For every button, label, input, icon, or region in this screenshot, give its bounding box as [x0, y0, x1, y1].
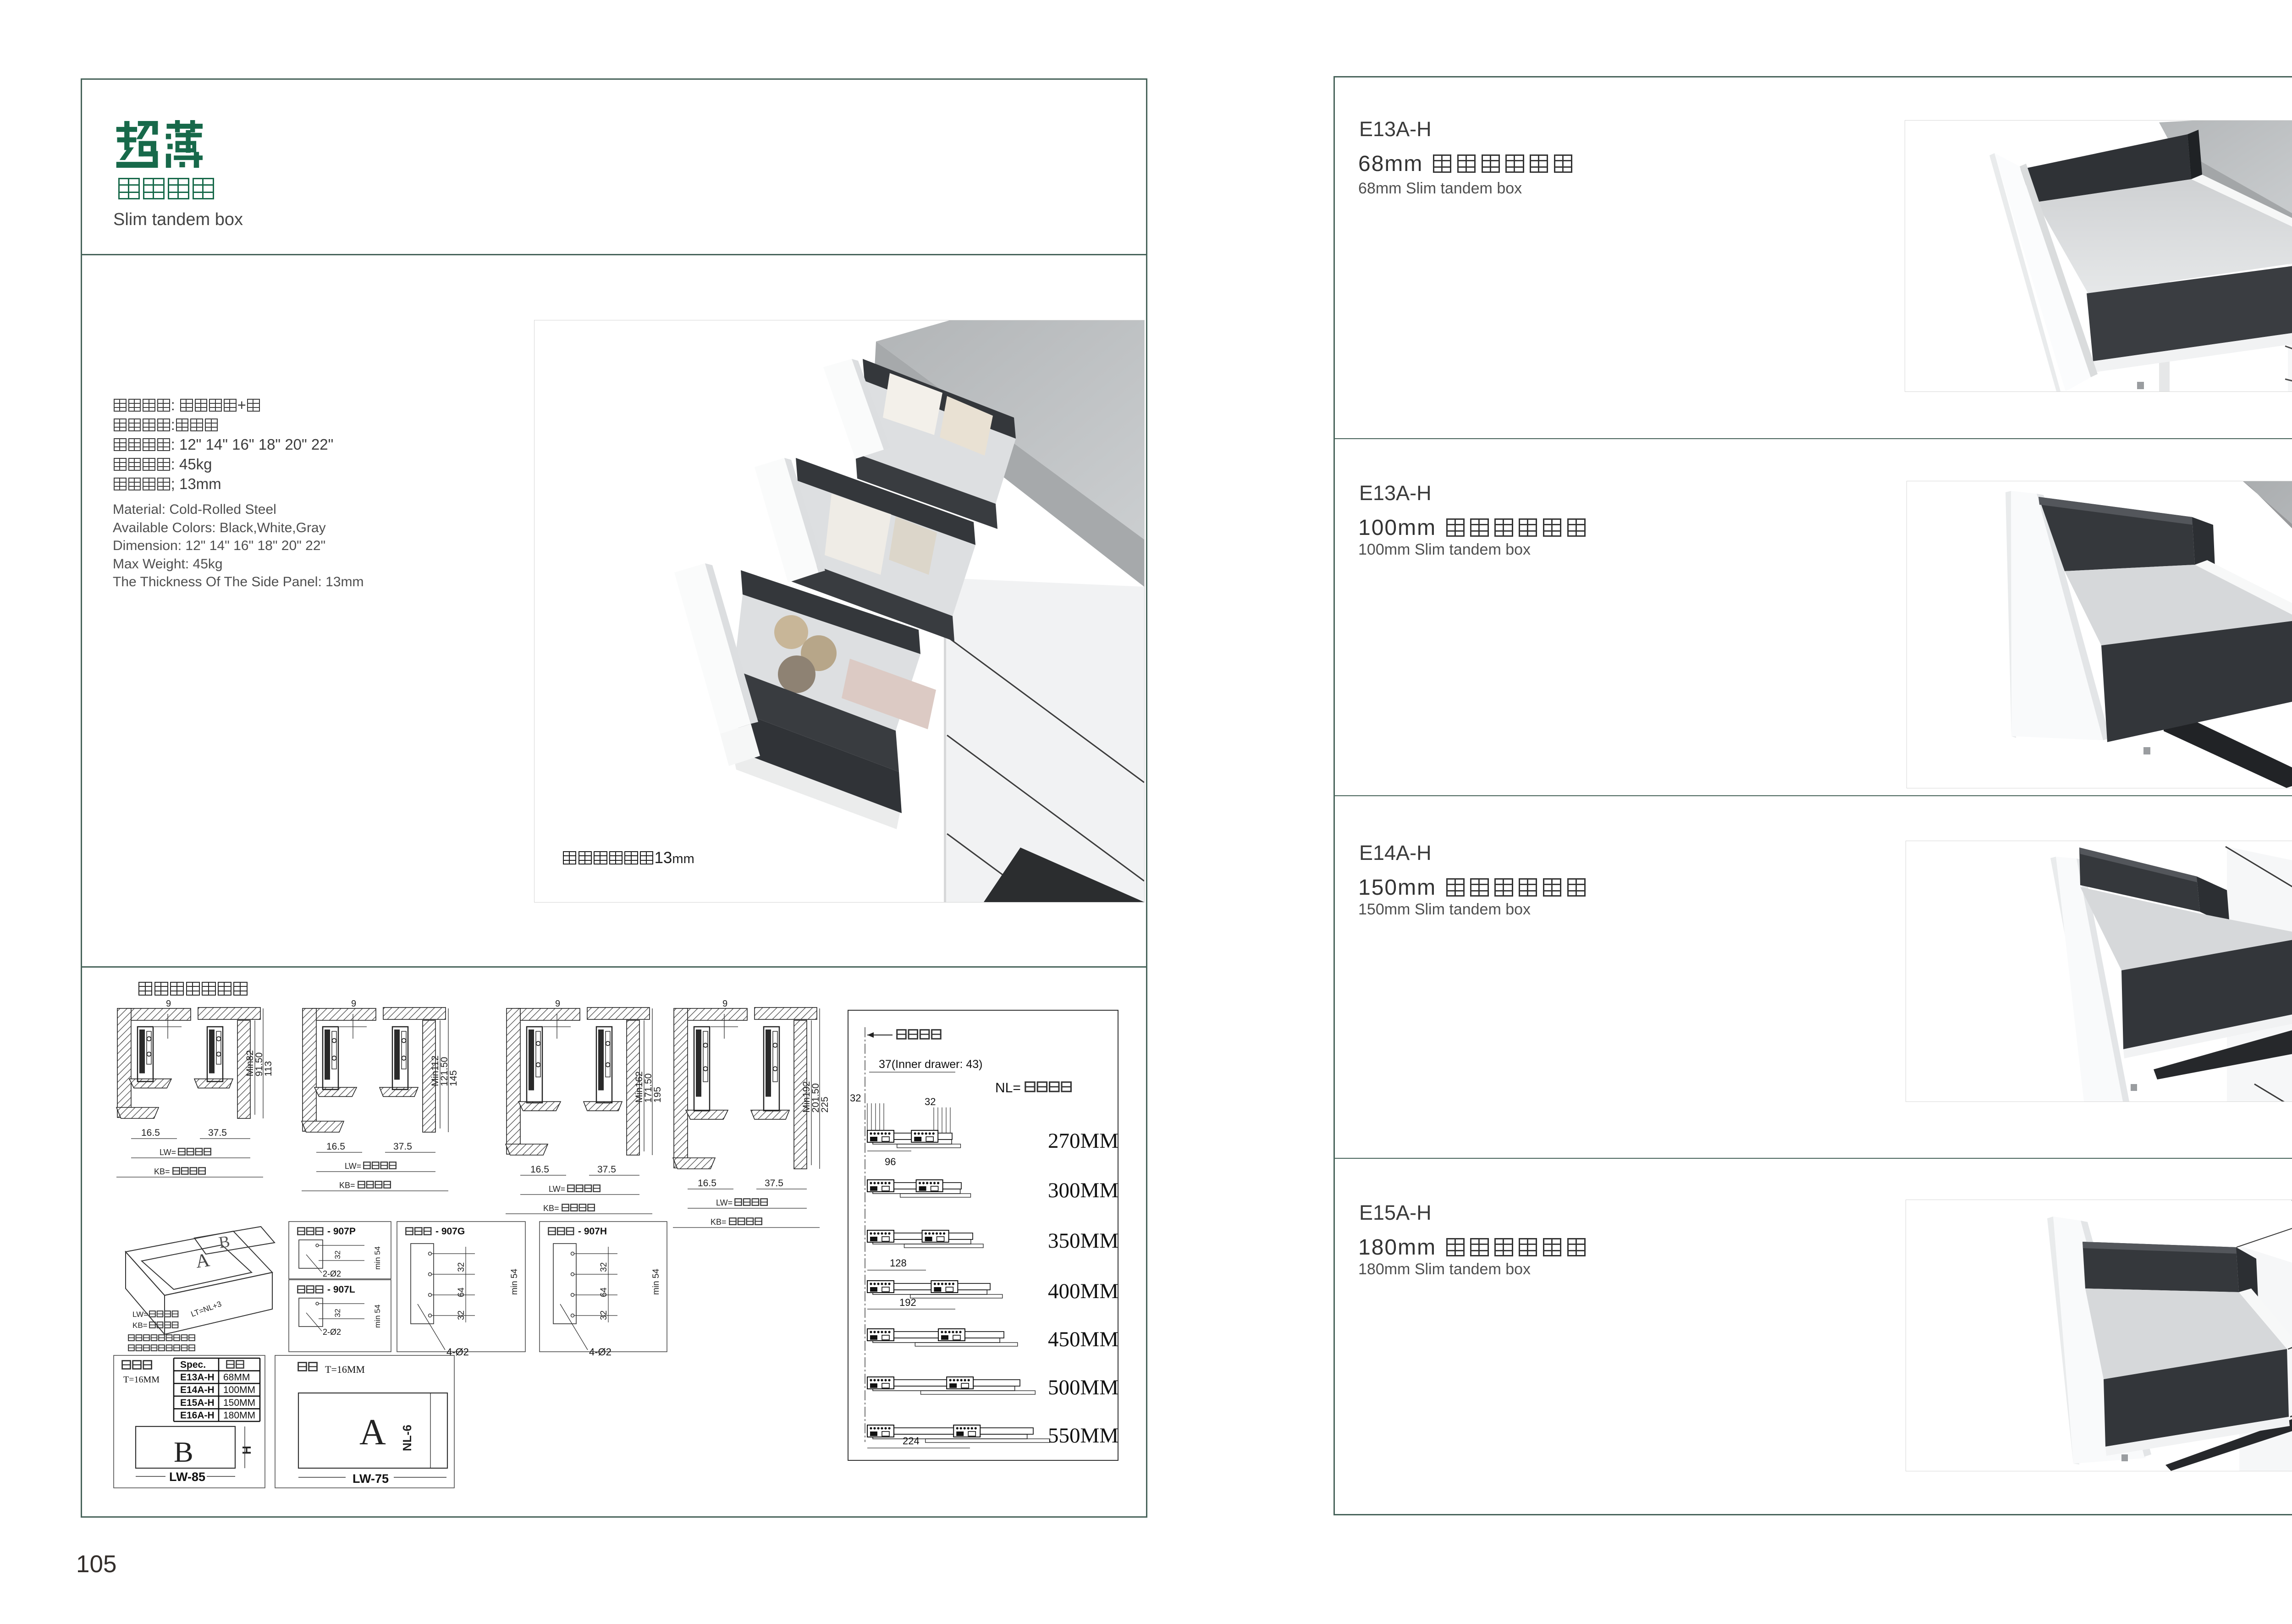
svg-text:225: 225	[820, 1096, 830, 1112]
svg-text:LW=: LW=	[345, 1162, 361, 1171]
svg-text:145: 145	[448, 1070, 459, 1086]
svg-text:4-Ø2: 4-Ø2	[446, 1346, 469, 1358]
svg-text:128: 128	[890, 1257, 907, 1269]
svg-text:96: 96	[885, 1156, 896, 1167]
svg-text:min 54: min 54	[651, 1269, 661, 1295]
svg-text:4-Ø2: 4-Ø2	[589, 1346, 612, 1358]
svg-text:16.5: 16.5	[326, 1141, 345, 1152]
svg-text:350MM: 350MM	[1048, 1229, 1118, 1253]
svg-text:16.5: 16.5	[698, 1178, 716, 1189]
svg-text:9: 9	[166, 999, 171, 1009]
svg-text:180MM: 180MM	[223, 1410, 255, 1420]
svg-text:KB=: KB=	[339, 1181, 355, 1190]
svg-text:300MM: 300MM	[1048, 1178, 1118, 1202]
svg-text:550MM: 550MM	[1048, 1424, 1118, 1448]
svg-text:32: 32	[333, 1250, 342, 1259]
svg-text:E14A-H: E14A-H	[180, 1385, 215, 1395]
svg-text:32: 32	[850, 1092, 861, 1104]
svg-text:- 907L: - 907L	[327, 1284, 355, 1295]
svg-text:32: 32	[457, 1310, 466, 1320]
svg-text:400MM: 400MM	[1048, 1279, 1118, 1303]
svg-text:32: 32	[333, 1309, 342, 1317]
svg-text:224: 224	[903, 1435, 920, 1447]
svg-text:LW=: LW=	[132, 1310, 148, 1319]
svg-text:min 54: min 54	[373, 1305, 382, 1328]
svg-text:32: 32	[599, 1262, 609, 1272]
svg-text:113: 113	[263, 1061, 274, 1076]
svg-text:LW-75: LW-75	[353, 1472, 389, 1486]
svg-text:KB=: KB=	[543, 1204, 559, 1213]
svg-text:9: 9	[722, 999, 727, 1009]
svg-text:270MM: 270MM	[1048, 1129, 1118, 1153]
svg-text:LW=: LW=	[716, 1198, 733, 1207]
svg-text:Spec.: Spec.	[180, 1360, 206, 1370]
svg-text:NL-6: NL-6	[400, 1425, 414, 1451]
svg-text:B: B	[218, 1232, 231, 1252]
svg-text:min 54: min 54	[510, 1269, 519, 1295]
svg-text:LW-85: LW-85	[169, 1470, 205, 1484]
svg-text:KB=: KB=	[132, 1321, 148, 1330]
svg-text:37.5: 37.5	[393, 1141, 412, 1152]
svg-text:min 54: min 54	[373, 1246, 382, 1270]
svg-text:LW=: LW=	[549, 1184, 565, 1194]
svg-text:- 907G: - 907G	[435, 1226, 465, 1237]
svg-text:32: 32	[599, 1310, 609, 1320]
svg-text:E15A-H: E15A-H	[180, 1398, 215, 1408]
svg-text:A: A	[194, 1250, 211, 1272]
svg-text:2-Ø2: 2-Ø2	[323, 1269, 341, 1278]
svg-text:2-Ø2: 2-Ø2	[323, 1327, 341, 1337]
svg-text:LW=: LW=	[160, 1148, 176, 1157]
svg-text:64: 64	[599, 1287, 609, 1297]
svg-text:150MM: 150MM	[223, 1398, 255, 1408]
svg-text:37.5: 37.5	[597, 1164, 616, 1175]
svg-text:A: A	[359, 1412, 386, 1453]
svg-text:64: 64	[457, 1287, 466, 1297]
svg-text:68MM: 68MM	[223, 1372, 250, 1383]
svg-text:KB=: KB=	[154, 1167, 170, 1176]
svg-text:37(Inner drawer: 43): 37(Inner drawer: 43)	[879, 1058, 983, 1071]
svg-text:E13A-H: E13A-H	[180, 1372, 215, 1383]
svg-text:B: B	[174, 1436, 193, 1468]
svg-text:37.5: 37.5	[208, 1128, 227, 1138]
svg-text:9: 9	[555, 999, 560, 1009]
svg-text:100MM: 100MM	[223, 1385, 255, 1395]
svg-text:16.5: 16.5	[141, 1128, 160, 1138]
svg-text:- 907P: - 907P	[327, 1226, 356, 1237]
svg-text:500MM: 500MM	[1048, 1376, 1118, 1399]
svg-text:195: 195	[652, 1087, 663, 1103]
svg-text:37.5: 37.5	[765, 1178, 783, 1189]
svg-text:KB=: KB=	[711, 1217, 727, 1227]
svg-text:NL=: NL=	[995, 1080, 1021, 1096]
svg-text:32: 32	[457, 1262, 466, 1272]
svg-text:LT=NL+3: LT=NL+3	[190, 1299, 223, 1319]
svg-text:T=16MM: T=16MM	[325, 1364, 365, 1375]
svg-text:T=16MM: T=16MM	[123, 1375, 160, 1385]
svg-text:192: 192	[899, 1297, 916, 1308]
svg-text:32: 32	[925, 1096, 936, 1107]
svg-text:H: H	[240, 1446, 253, 1454]
svg-text:9: 9	[351, 999, 356, 1009]
svg-text:- 907H: - 907H	[578, 1226, 607, 1237]
svg-text:E16A-H: E16A-H	[180, 1410, 215, 1420]
svg-text:16.5: 16.5	[530, 1164, 549, 1175]
svg-text:450MM: 450MM	[1048, 1327, 1118, 1351]
